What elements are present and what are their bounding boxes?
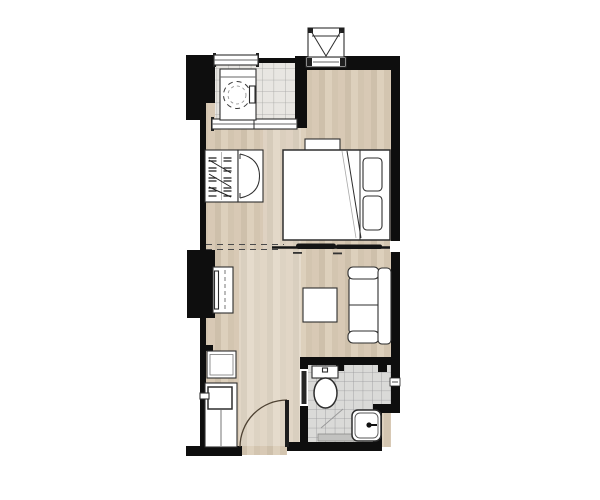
kitchen-wall-stub (200, 345, 213, 351)
service-shaft-column (187, 250, 215, 318)
right-wall-opening (390, 241, 401, 252)
hallway-light-band (239, 250, 301, 447)
toilet-flush-button (323, 368, 328, 372)
faucet-knob (366, 422, 371, 427)
structural-wall-block (186, 55, 215, 103)
sofa-armrest (348, 331, 379, 343)
toilet-bowl (314, 378, 337, 408)
sink-faucet (200, 393, 209, 399)
sliding-panel (336, 245, 382, 250)
kitchen-appliance (207, 351, 236, 378)
sofa (348, 267, 391, 344)
entry-door-leaf (285, 400, 289, 447)
bathroom-wall-square-right (378, 364, 387, 372)
balcony-right-wall (295, 58, 307, 128)
panel-tick (333, 253, 342, 255)
floor-plan (0, 0, 600, 500)
entry-threshold (242, 446, 287, 455)
right-wall-upper (391, 60, 400, 410)
pillow (363, 158, 382, 191)
kitchen-sink (208, 387, 232, 409)
floor-plan-drawing (0, 0, 600, 500)
bathroom-top-wall (300, 357, 391, 365)
washing-machine-door-hinge (250, 86, 256, 103)
balcony-fixtures (220, 69, 256, 120)
tv-panel (215, 271, 219, 309)
vent-end-block (340, 58, 345, 66)
ac-condenser-unit (308, 28, 344, 57)
wall-stub-top-left (186, 103, 201, 120)
panel-tick (293, 252, 302, 254)
pillow (363, 196, 382, 230)
toilet (312, 366, 338, 408)
sofa-backrest (378, 268, 391, 344)
balcony-top-railing (258, 58, 295, 63)
sliding-panel (296, 244, 336, 250)
bathroom-door-leaf (302, 371, 307, 404)
vent-end-block (307, 58, 312, 66)
washbasin (352, 410, 381, 441)
sofa-armrest (348, 267, 379, 279)
ac-unit-body (308, 28, 344, 57)
coffee-table (303, 288, 337, 322)
